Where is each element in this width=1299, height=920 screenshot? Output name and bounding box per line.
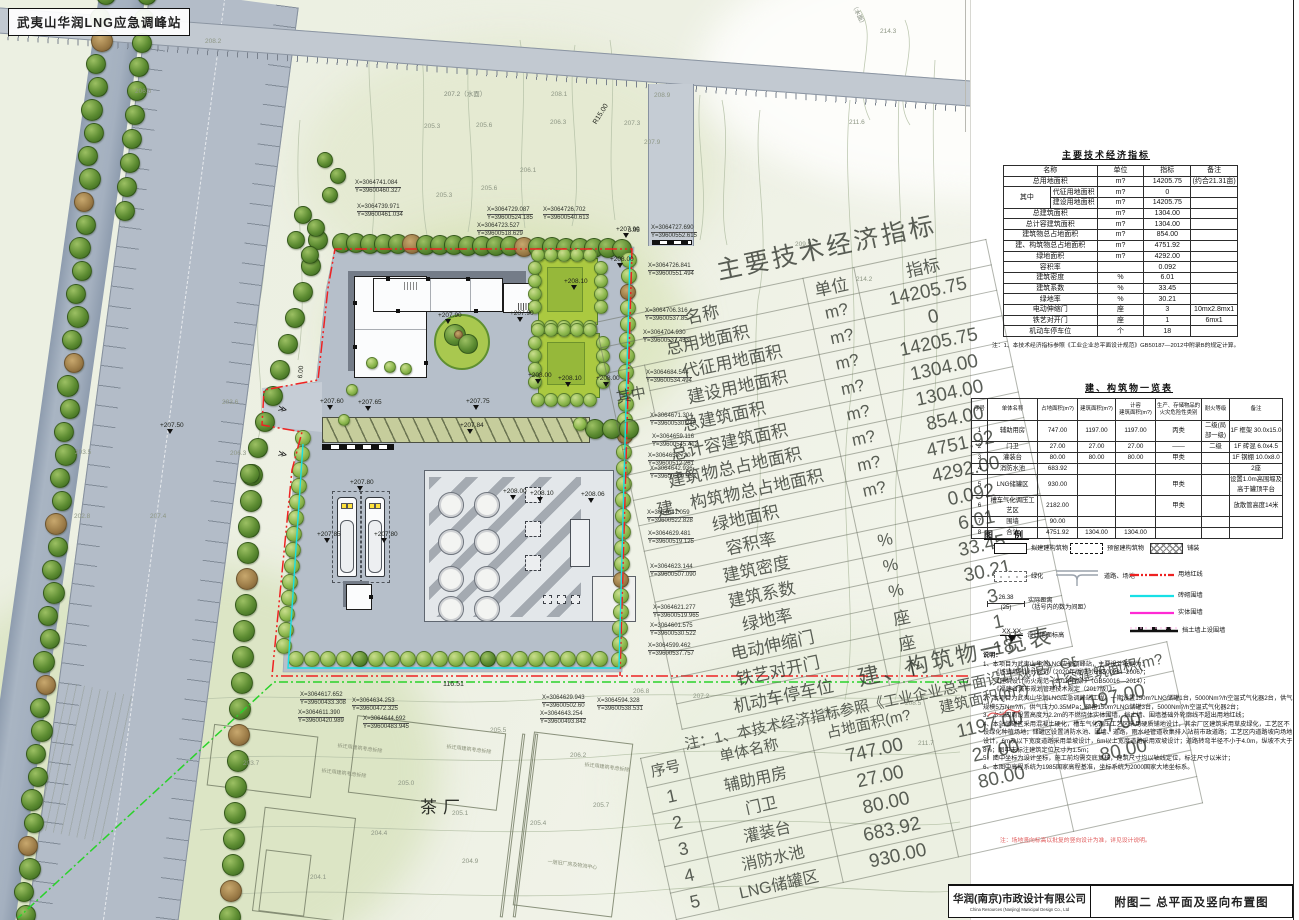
name-cell: 建筑物总占地面积 xyxy=(1004,230,1098,241)
indicators-table-note: 注：1、本技术经济指标参照《工业企业总平面设计规范》GB50187—2012中附… xyxy=(992,340,1239,349)
elevation-label: +208.00 xyxy=(503,488,527,500)
unit-cell: 个 xyxy=(1097,326,1144,337)
unit-cell: % xyxy=(1097,272,1144,283)
note-line: 6、本图中高程系统为1985国家高程基准，坐标系统为2000国家大地坐标系。 xyxy=(983,764,1295,773)
coordinate-callout: X=3064621.277Y=39600519.965 xyxy=(653,605,699,620)
cell xyxy=(1230,517,1283,528)
cell xyxy=(1116,475,1156,496)
remark-cell: 10mx2.8mx1 xyxy=(1191,304,1238,315)
cell: 27.00 xyxy=(1078,442,1116,453)
note-line: 1、本项目为武夷山华润LNG应急调峰站，主要设计依据为： xyxy=(983,661,1295,670)
unit-cell: % xyxy=(1097,294,1144,305)
cell: 1F 砖混 6.0x4.5 xyxy=(1230,442,1283,453)
th: 名称 xyxy=(1004,166,1098,177)
cell: 1304.00 xyxy=(1116,528,1156,539)
cell: —— xyxy=(1156,442,1202,453)
magenta-line-glyph xyxy=(1130,610,1174,616)
coordinate-callout: X=3064629.481Y=39600519.125 xyxy=(648,531,694,546)
cell xyxy=(1116,464,1156,475)
name-cell: 总用地面积 xyxy=(1004,176,1098,187)
cell: 4 xyxy=(972,464,988,475)
coordinate-callout: X=3064599.462Y=39600537.757 xyxy=(648,643,694,658)
name-cell: 建、构筑物总占地面积 xyxy=(1004,240,1098,251)
cell xyxy=(1202,528,1230,539)
cell: 甲类 xyxy=(1156,453,1202,464)
name-cell: 总计容建筑面积 xyxy=(1004,219,1098,230)
value-cell: 30.21 xyxy=(1144,294,1191,305)
unit-cell: m? xyxy=(1097,240,1144,251)
unit-cell: m? xyxy=(1097,230,1144,241)
coordinate-callout: X=3064704.930Y=39600537.453 xyxy=(643,330,689,345)
cell: 甲类 xyxy=(1156,496,1202,517)
elevation-marker-icon xyxy=(467,429,473,434)
legend-item: 铺装 xyxy=(1150,543,1199,554)
coordinate-callout: X=3064601.575Y=39600530.522 xyxy=(650,623,696,638)
reserved-structure-swatch xyxy=(1070,543,1103,554)
elevation-label: +207.65 xyxy=(358,399,382,411)
elevation-label: +207.75 xyxy=(466,398,490,410)
frame-line xyxy=(965,0,966,132)
name-cell: 建筑密度 xyxy=(1004,272,1098,283)
coordinate-callout: X=3064617.652Y=39600433.308 xyxy=(300,692,346,707)
cyan-line-glyph xyxy=(1130,593,1174,599)
elevation-marker-icon xyxy=(535,379,541,384)
cell: 80.00 xyxy=(1116,453,1156,464)
remark-cell xyxy=(1191,251,1238,262)
cell xyxy=(1202,496,1230,517)
greening-swatch xyxy=(994,571,1027,582)
coordinate-callout: X=3064729.087Y=39600524.185 xyxy=(487,207,533,222)
red-line-glyph xyxy=(1130,572,1174,578)
indicators-table: 名称单位指标备注总用地面积m?14205.75(约合21.31亩)其中代征用地面… xyxy=(1003,165,1238,337)
elevation-mark-glyph: XX.XX xyxy=(1000,628,1023,642)
legend-item: 道路、场地 xyxy=(1054,566,1135,586)
elevation-marker-icon xyxy=(537,497,543,502)
name-cell: 绿地面积 xyxy=(1004,251,1098,262)
remark-cell xyxy=(1191,230,1238,241)
coordinate-callout: X=3064727.690Y=39600552.615 xyxy=(651,225,697,240)
legend-item: 预留建构筑物 xyxy=(1070,543,1144,554)
remark-cell xyxy=(1191,187,1238,198)
retaining-wall-glyph xyxy=(1130,626,1178,634)
value-cell: 4292.00 xyxy=(1144,251,1191,262)
cell: 1F 钢棚 10.0x8.0 xyxy=(1230,453,1283,464)
cell xyxy=(1156,517,1202,528)
name-cell: 绿地率 xyxy=(1004,294,1098,305)
map-annotation: 116.51 xyxy=(443,681,464,688)
cell: 设置1.0m高围堰及高于罐顶平台 xyxy=(1230,475,1283,496)
coordinate-callout: X=3064623.144Y=39600507.090 xyxy=(650,564,696,579)
note-line: 5、图中坐标为设计坐标，施工前均需交底复核，建筑尺寸均以轴线定位，标注尺寸以米计… xyxy=(983,755,1295,764)
cell: 甲类 xyxy=(1156,475,1202,496)
notes-block: 说明：1、本项目为武夷山华润LNG应急调峰站，主要设计依据为： 《城镇燃气设计规… xyxy=(983,652,1295,772)
company-name-en: China Resources (Nanjing) Municipal Desi… xyxy=(970,907,1069,912)
elevation-marker-icon xyxy=(327,405,333,410)
remark-cell xyxy=(1191,283,1238,294)
elevation-label: +207.80 xyxy=(374,531,398,543)
legend-item: 用地红线 xyxy=(1130,571,1203,578)
elevation-marker-icon xyxy=(357,486,363,491)
coordinate-callout: X=3064726.841Y=39600551.494 xyxy=(648,263,694,278)
unit-cell: 座 xyxy=(1097,304,1144,315)
elevation-marker-icon xyxy=(603,382,609,387)
structures-table: 序号单体名称占地面积(m?)建筑面积(m?)计容 建筑面积(m?)生产、存储物品… xyxy=(971,398,1283,539)
elevation-marker-icon xyxy=(365,406,371,411)
th: 占地面积(m?) xyxy=(1038,399,1078,421)
legend-item: 拟建建构筑物 xyxy=(994,543,1068,554)
name-cell: 建设用地面积 xyxy=(1050,198,1097,209)
coordinate-callout: X=3064643.254Y=39600493.842 xyxy=(540,711,586,726)
cell: 1F 框架 30.0x15.0 xyxy=(1230,421,1283,442)
value-cell: 1304.00 xyxy=(1144,219,1191,230)
map-annotation: 207.2（水面） xyxy=(444,88,486,98)
value-cell: 1 xyxy=(1144,315,1191,326)
note-line: 3、本站四周设置高度为2.2m的不燃烧体实体围墙，挡土墙、围墙基础外轮廓线不超出… xyxy=(983,712,1295,721)
remark-cell xyxy=(1191,294,1238,305)
elevation-label: +208.10 xyxy=(558,375,582,387)
elevation-marker-icon xyxy=(510,495,516,500)
unit-cell: m? xyxy=(1097,219,1144,230)
cell: 80.00 xyxy=(1038,453,1078,464)
merge-cell: 其中 xyxy=(1004,187,1051,208)
elevation-label: +207.50 xyxy=(160,422,184,434)
elevation-marker-icon xyxy=(445,319,451,324)
unit-cell: m? xyxy=(1097,187,1144,198)
cell: 27.00 xyxy=(1116,442,1156,453)
elevation-marker-icon xyxy=(324,538,330,543)
coordinate-callout: X=3064684.544Y=39600534.494 xyxy=(646,370,692,385)
cell: 1304.00 xyxy=(1078,528,1116,539)
cell: 辅助用房 xyxy=(988,421,1038,442)
elevation-marker-icon xyxy=(617,263,623,268)
elevation-label: +207.84 xyxy=(460,422,484,434)
cell: 2座 xyxy=(1230,464,1283,475)
name-cell: 电动伸缩门 xyxy=(1004,304,1098,315)
unit-cell: 座 xyxy=(1097,315,1144,326)
name-cell: 容积率 xyxy=(1004,262,1098,273)
th: 指标 xyxy=(1144,166,1191,177)
legend-item: 26.38 (25) 实际距离 （括号内的数为间距） xyxy=(988,595,1090,612)
value-cell: 0 xyxy=(1144,187,1191,198)
value-cell: 3 xyxy=(1144,304,1191,315)
cell xyxy=(1156,464,1202,475)
elevation-marker-icon xyxy=(565,382,571,387)
cell: 放散管高度14米 xyxy=(1230,496,1283,517)
elevation-label: +208.10 xyxy=(530,490,554,502)
cell xyxy=(1078,464,1116,475)
cell xyxy=(1078,475,1116,496)
coordinate-callout: X=3064594.328Y=39600538.531 xyxy=(597,698,643,713)
remark-cell xyxy=(1191,262,1238,273)
road-glyph xyxy=(1054,566,1100,586)
coordinate-callout: X=3064641.059Y=39600522.828 xyxy=(647,510,693,525)
remark-cell xyxy=(1191,208,1238,219)
cell: 门卫 xyxy=(988,442,1038,453)
cell: 6 xyxy=(972,496,988,517)
map-annotation: 6.00 xyxy=(297,365,305,378)
value-cell: 33.45 xyxy=(1144,283,1191,294)
cell xyxy=(1116,517,1156,528)
elevation-marker-icon xyxy=(167,429,173,434)
cell: 1 xyxy=(972,421,988,442)
cell xyxy=(1202,453,1230,464)
legend-item: 挡土墙上设围墙 xyxy=(1130,626,1225,634)
coordinate-callout: X=3064629.943Y=39600502.60 xyxy=(542,695,585,710)
cell: 5 xyxy=(972,475,988,496)
company-name: 华润(南京)市政设计有限公司 xyxy=(953,891,1086,906)
title-block: 华润(南京)市政设计有限公司 China Resources (Nanjing)… xyxy=(948,884,1293,918)
unit-cell xyxy=(1097,262,1144,273)
cell: 槽车气化调压工艺区 xyxy=(988,496,1038,517)
structures-table-title: 建、构筑物一览表 xyxy=(1085,381,1173,394)
value-cell: 4751.92 xyxy=(1144,240,1191,251)
elevation-label: +207.60 xyxy=(320,398,344,410)
cell: 3 xyxy=(972,453,988,464)
name-cell: 代征用地面积 xyxy=(1050,187,1097,198)
note-line: 2、本项目为武夷山华润LNG应急调峰站工程，一期设置150m?LNG储罐1台，5… xyxy=(983,695,1295,712)
th: 计容 建筑面积(m?) xyxy=(1116,399,1156,421)
legend-item: 砖砌围墙 xyxy=(1130,592,1203,599)
th: 耐火等级 xyxy=(1202,399,1230,421)
cell: 消防水池 xyxy=(988,464,1038,475)
elevation-label: +208.10 xyxy=(564,278,588,290)
red-annotation: 注：场地竖向标高以批复的竖向设计为准，详见设计说明。 xyxy=(1000,835,1151,844)
unit-cell: % xyxy=(1097,283,1144,294)
company-cell: 华润(南京)市政设计有限公司 China Resources (Nanjing)… xyxy=(949,886,1091,917)
distance-dim-glyph: 26.38 (25) xyxy=(988,595,1024,612)
coordinate-callout: X=3064611.390Y=39600420.989 xyxy=(298,710,344,725)
name-cell: 机动车停车位 xyxy=(1004,326,1098,337)
cell: 2 xyxy=(972,442,988,453)
elevation-label: +207.90 xyxy=(438,312,462,324)
elevation-label: +208.00 xyxy=(610,256,634,268)
remark-cell: (约合21.31亩) xyxy=(1191,176,1238,187)
remark-cell xyxy=(1191,326,1238,337)
coordinate-callout: X=3064726.702Y=39600540.613 xyxy=(543,207,589,222)
drawing-sheet: +207.60+207.65+207.75+207.84+207.80+207.… xyxy=(0,0,1299,920)
cell: 27.00 xyxy=(1038,442,1078,453)
map-title: 武夷山华润LNG应急调峰站 xyxy=(17,16,181,30)
coordinate-callout: X=3064671.304Y=39600530.248 xyxy=(650,413,696,428)
coordinate-callout: X=3064741.084Y=39600460.327 xyxy=(355,180,401,195)
cell: 1197.00 xyxy=(1116,421,1156,442)
cell xyxy=(1078,496,1116,517)
unit-cell: m? xyxy=(1097,251,1144,262)
cell: 1197.00 xyxy=(1078,421,1116,442)
elevation-label: +208.06 xyxy=(581,491,605,503)
legend-title: 图 例 xyxy=(984,528,1029,541)
elevation-marker-icon xyxy=(473,405,479,410)
coordinate-callout: X=3064706.316Y=39600537.85 xyxy=(645,308,688,323)
elevation-label: +207.80 xyxy=(350,479,374,491)
paving-swatch xyxy=(1150,543,1183,554)
value-cell: 14205.75 xyxy=(1144,176,1191,187)
value-cell: 18 xyxy=(1144,326,1191,337)
cell: 7 xyxy=(972,517,988,528)
th: 建筑面积(m?) xyxy=(1078,399,1116,421)
indicators-table-title: 主要技术经济指标 xyxy=(1062,148,1150,161)
proposed-structure-swatch xyxy=(994,543,1027,554)
elevation-label: +207.85 xyxy=(317,531,341,543)
elevation-marker-icon xyxy=(571,285,577,290)
value-cell: 14205.75 xyxy=(1144,198,1191,209)
note-line: 4、本站储罐区采用混凝土硬化，槽车气化调压工艺区采用硬质铺地设计，其余厂区建筑采… xyxy=(983,721,1295,755)
red-pen-mark xyxy=(986,704,1022,722)
remark-cell xyxy=(1191,240,1238,251)
elevation-marker-icon xyxy=(381,538,387,543)
value-cell: 6.01 xyxy=(1144,272,1191,283)
value-cell: 1304.00 xyxy=(1144,208,1191,219)
coordinate-callout: X=3064659.116Y=39600545.412 xyxy=(652,434,698,449)
map-title-box: 武夷山华润LNG应急调峰站 xyxy=(8,8,190,36)
legend-item: XX.XX 设计地面标高 xyxy=(1000,628,1064,642)
cell xyxy=(1230,528,1283,539)
elevation-label: +208.00 xyxy=(596,375,620,387)
coordinate-callout: X=3064634.253Y=39600472.325 xyxy=(352,698,398,713)
elevation-marker-icon xyxy=(588,498,594,503)
note-line: 《城镇燃气设计规范（2020年版）》（GB50028—2006）； xyxy=(983,669,1295,678)
cell xyxy=(1202,475,1230,496)
th: 备注 xyxy=(1230,399,1283,421)
elevation-label: +208.00 xyxy=(528,372,552,384)
cell: 灌装台 xyxy=(988,453,1038,464)
unit-cell: m? xyxy=(1097,208,1144,219)
legend-item: 实体围墙 xyxy=(1130,609,1203,616)
cell: 683.92 xyxy=(1038,464,1078,475)
notes-title: 说明： xyxy=(983,652,1295,661)
unit-cell: m? xyxy=(1097,176,1144,187)
cell xyxy=(1156,528,1202,539)
coordinate-callout: X=3064642.936Y=39600509.953 xyxy=(650,466,696,481)
cell: 二级 xyxy=(1202,442,1230,453)
value-cell: 0.092 xyxy=(1144,262,1191,273)
name-cell: 建筑系数 xyxy=(1004,283,1098,294)
elevation-label: +207.90 xyxy=(510,310,534,322)
th: 生产、存储物品的 火灾危险性类别 xyxy=(1156,399,1202,421)
remark-cell xyxy=(1191,272,1238,283)
cell: LNG储罐区 xyxy=(988,475,1038,496)
th: 单位 xyxy=(1097,166,1144,177)
remark-cell xyxy=(1191,219,1238,230)
remark-cell xyxy=(1191,198,1238,209)
cell: 丙类 xyxy=(1156,421,1202,442)
legend-item: 绿化 xyxy=(994,571,1043,582)
cell xyxy=(1116,496,1156,517)
name-cell: 总建筑面积 xyxy=(1004,208,1098,219)
name-cell: 铁艺对开门 xyxy=(1004,315,1098,326)
th: 序号 xyxy=(972,399,988,421)
map-annotation: 3.05 xyxy=(628,228,640,234)
note-line: 《福建省城市规划管理技术规定（2017版）》； xyxy=(983,686,1295,695)
value-cell: 854.00 xyxy=(1144,230,1191,241)
cell xyxy=(1078,517,1116,528)
cell: 90.00 xyxy=(1038,517,1078,528)
cell xyxy=(1202,464,1230,475)
cell: 930.00 xyxy=(1038,475,1078,496)
red-scribble xyxy=(984,54,1024,74)
cell: 围墙 xyxy=(988,517,1038,528)
remark-cell: 6mx1 xyxy=(1191,315,1238,326)
cell: 二级(局部一级) xyxy=(1202,421,1230,442)
unit-cell: m? xyxy=(1097,198,1144,209)
th: 单体名称 xyxy=(988,399,1038,421)
coordinate-callout: X=3064739.971Y=39600461.034 xyxy=(357,204,403,219)
info-panel: 主要技术经济指标 名称单位指标备注总用地面积m?14205.75(约合21.31… xyxy=(970,0,1299,920)
th: 备注 xyxy=(1191,166,1238,177)
cell xyxy=(1202,517,1230,528)
cell: 80.00 xyxy=(1078,453,1116,464)
coordinate-callout: X=3064723.527Y=39600518.629 xyxy=(477,223,523,238)
cell: 2182.00 xyxy=(1038,496,1078,517)
sheet-frame xyxy=(1293,0,1294,920)
elevation-marker-icon xyxy=(517,317,523,322)
cell: 4751.92 xyxy=(1038,528,1078,539)
drawing-title: 附图二 总平面及竖向布置图 xyxy=(1091,886,1292,917)
cell: 747.00 xyxy=(1038,421,1078,442)
tea-factory-label: 茶厂 xyxy=(420,793,466,818)
coordinate-callout: X=3064644.692Y=39600483.945 xyxy=(363,716,409,731)
